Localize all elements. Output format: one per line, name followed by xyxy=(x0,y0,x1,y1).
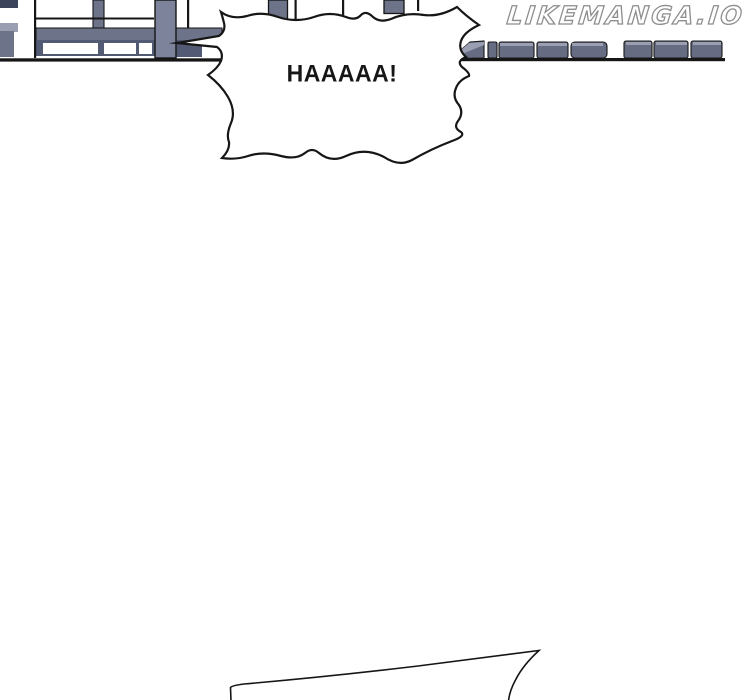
window-divider-line xyxy=(295,0,297,20)
window-pane xyxy=(139,43,152,54)
slab-bevel xyxy=(626,42,651,45)
slab-bevel xyxy=(572,43,603,46)
street-line-left xyxy=(0,58,232,61)
slab-bevel xyxy=(693,42,721,45)
roof-slab xyxy=(488,42,497,58)
bottom-partial-bubble xyxy=(231,651,540,700)
facade-column xyxy=(155,0,176,58)
slab-bevel xyxy=(538,43,567,46)
window-divider-line xyxy=(187,0,189,28)
wall-panel-left xyxy=(0,31,14,57)
mullion-strip-mid-2 xyxy=(384,0,404,14)
window-pane xyxy=(104,43,136,54)
shout-bubble-text: HAAAAA! xyxy=(280,60,404,87)
window-divider-line xyxy=(36,18,154,20)
roof-slab xyxy=(0,0,18,8)
left-band-highlight xyxy=(0,23,18,32)
slab-bevel xyxy=(500,43,533,46)
window-divider-line xyxy=(417,0,419,11)
slab-bevel xyxy=(656,42,687,45)
site-watermark-logo: LIKEMANGA.IO xyxy=(505,2,745,30)
art-root xyxy=(0,0,725,700)
window-mullion-strip xyxy=(93,0,104,28)
street-line-right xyxy=(455,58,725,61)
window-pane xyxy=(43,43,98,54)
facade-column-group xyxy=(155,0,176,58)
window-panes xyxy=(43,43,152,54)
manga-panel-art xyxy=(0,0,750,700)
wall-highlight xyxy=(0,23,18,32)
manga-page: HAAAAA! LIKEMANGA.IO xyxy=(0,0,750,700)
pillar-edge-line xyxy=(34,0,36,58)
roof-slab-topleft xyxy=(0,0,18,8)
window-divider-line xyxy=(342,0,344,15)
